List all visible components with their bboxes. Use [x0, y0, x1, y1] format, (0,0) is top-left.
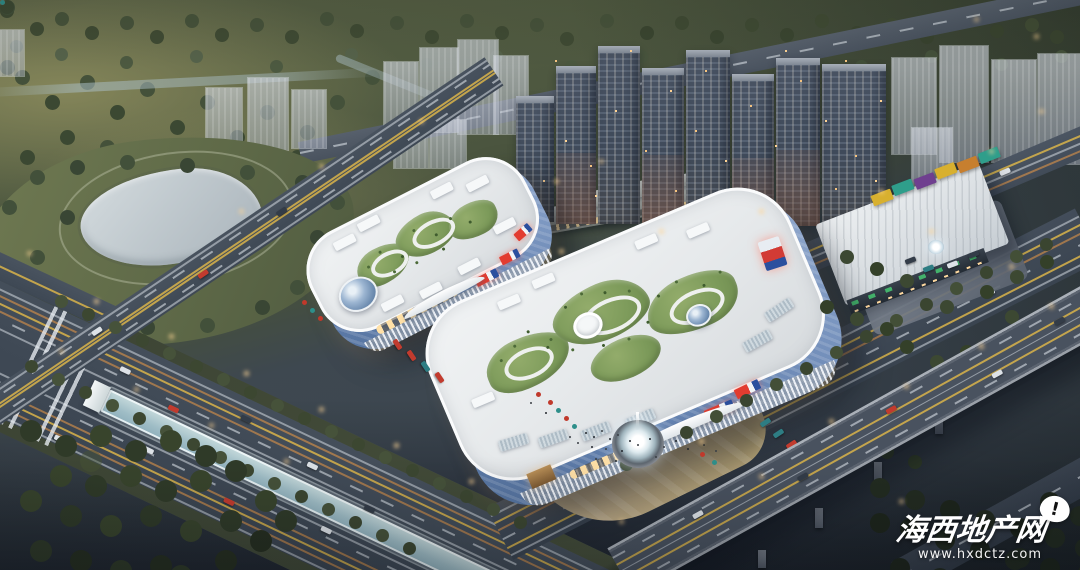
watermark-site-url: www.hxdctz.com [918, 547, 1042, 562]
ghost-tower [248, 78, 288, 150]
tree-cluster [870, 478, 890, 498]
street-lights [0, 0, 3, 3]
watermark-site-name: 海西地产网 [894, 516, 1048, 546]
ghost-tower [0, 30, 24, 76]
plaza-fountain [612, 420, 664, 468]
viaduct-pier [815, 508, 823, 528]
car [167, 404, 179, 413]
viaduct-pier [758, 550, 766, 568]
aerial-rendering-scene: 海西地产网 www.hxdctz.com ! [0, 0, 1080, 570]
tree-row [55, 295, 68, 308]
residential-tower [556, 66, 596, 224]
residential-tower [598, 46, 640, 224]
watermark-logo: 海西地产网 www.hxdctz.com ! [860, 504, 1070, 562]
tree-row [25, 360, 38, 373]
pedestrians [585, 432, 587, 434]
ghost-tower [292, 90, 326, 148]
car [119, 366, 131, 375]
tree-cluster [20, 420, 42, 442]
residential-tower [776, 58, 820, 226]
small-fountain [928, 240, 944, 254]
residential-tower [642, 68, 684, 226]
car [797, 472, 809, 482]
